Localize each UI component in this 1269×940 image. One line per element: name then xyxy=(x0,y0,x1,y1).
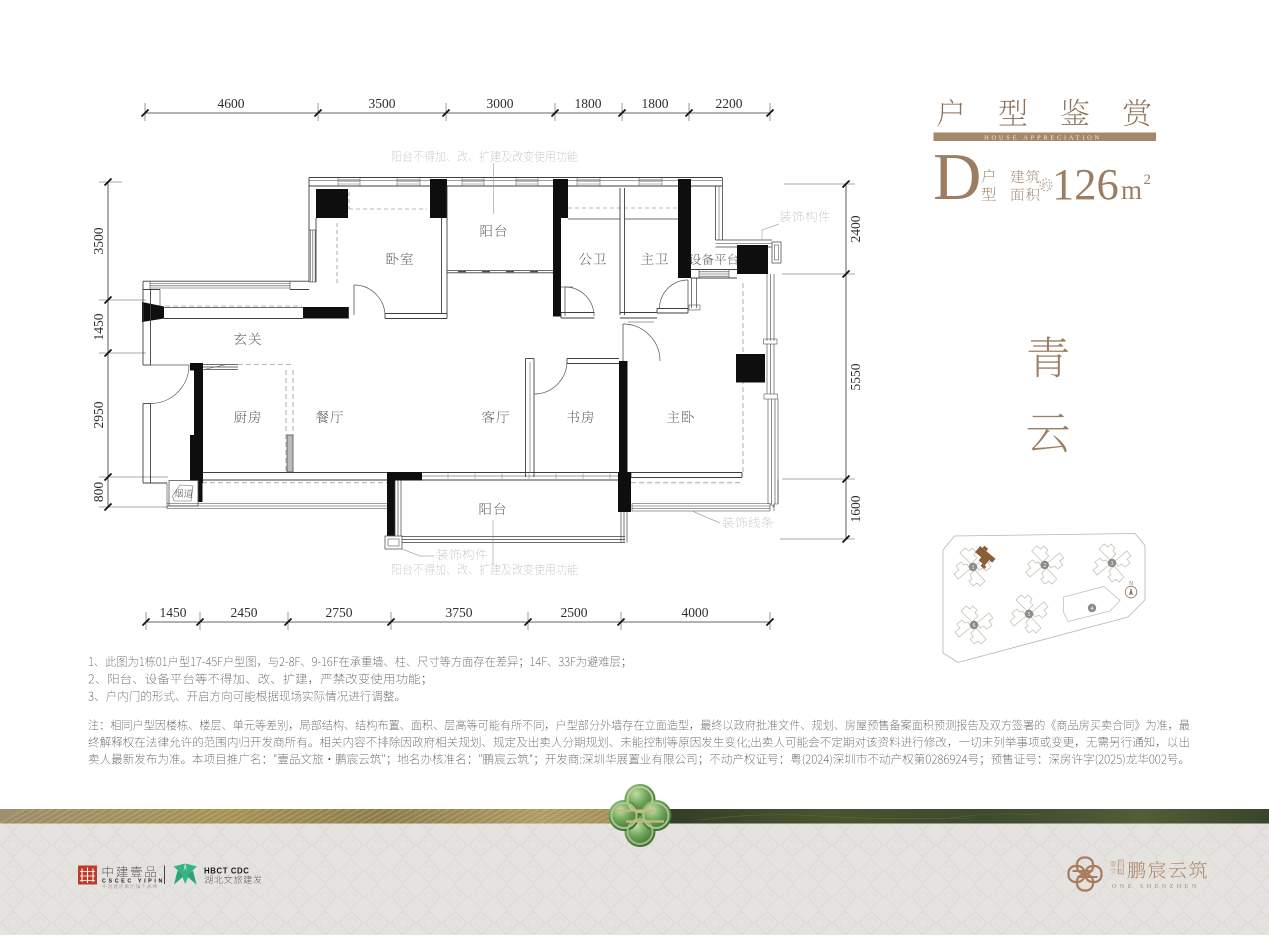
svg-text:1450: 1450 xyxy=(160,605,187,620)
svg-text:HBCT CDC: HBCT CDC xyxy=(204,867,250,876)
svg-text:2750: 2750 xyxy=(326,605,353,620)
svg-text:1800: 1800 xyxy=(642,96,669,111)
svg-text:2400: 2400 xyxy=(848,215,863,242)
svg-text:1: 1 xyxy=(972,565,975,571)
svg-text:2: 2 xyxy=(1144,172,1152,188)
svg-text:3750: 3750 xyxy=(446,605,473,620)
svg-text:126: 126 xyxy=(1052,159,1119,209)
svg-text:3500: 3500 xyxy=(369,96,396,111)
svg-text:HOUSE APPRECIATION: HOUSE APPRECIATION xyxy=(984,134,1102,141)
svg-text:2500: 2500 xyxy=(561,605,588,620)
svg-text:1800: 1800 xyxy=(575,96,602,111)
svg-text:1600: 1600 xyxy=(848,495,863,522)
svg-text:3000: 3000 xyxy=(487,96,514,111)
svg-text:4600: 4600 xyxy=(218,96,245,111)
svg-text:3500: 3500 xyxy=(91,227,106,254)
svg-text:5550: 5550 xyxy=(848,363,863,390)
svg-text:2450: 2450 xyxy=(231,605,258,620)
svg-text:m: m xyxy=(1121,175,1142,205)
svg-text:2200: 2200 xyxy=(716,96,743,111)
svg-text:800: 800 xyxy=(91,482,106,503)
svg-text:5: 5 xyxy=(1028,612,1031,618)
svg-text:D: D xyxy=(933,140,981,214)
svg-text:1450: 1450 xyxy=(91,313,106,340)
svg-text:CSCEC YIPIN: CSCEC YIPIN xyxy=(102,879,165,885)
svg-text:2950: 2950 xyxy=(91,401,106,428)
svg-text:6: 6 xyxy=(973,623,976,629)
svg-text:3: 3 xyxy=(1111,561,1114,567)
svg-text:2: 2 xyxy=(1043,563,1046,569)
svg-text:ONE SHENZHEN: ONE SHENZHEN xyxy=(1112,883,1200,890)
svg-text:N: N xyxy=(1129,581,1133,587)
svg-text:4000: 4000 xyxy=(682,605,709,620)
svg-text:4: 4 xyxy=(1091,606,1094,612)
